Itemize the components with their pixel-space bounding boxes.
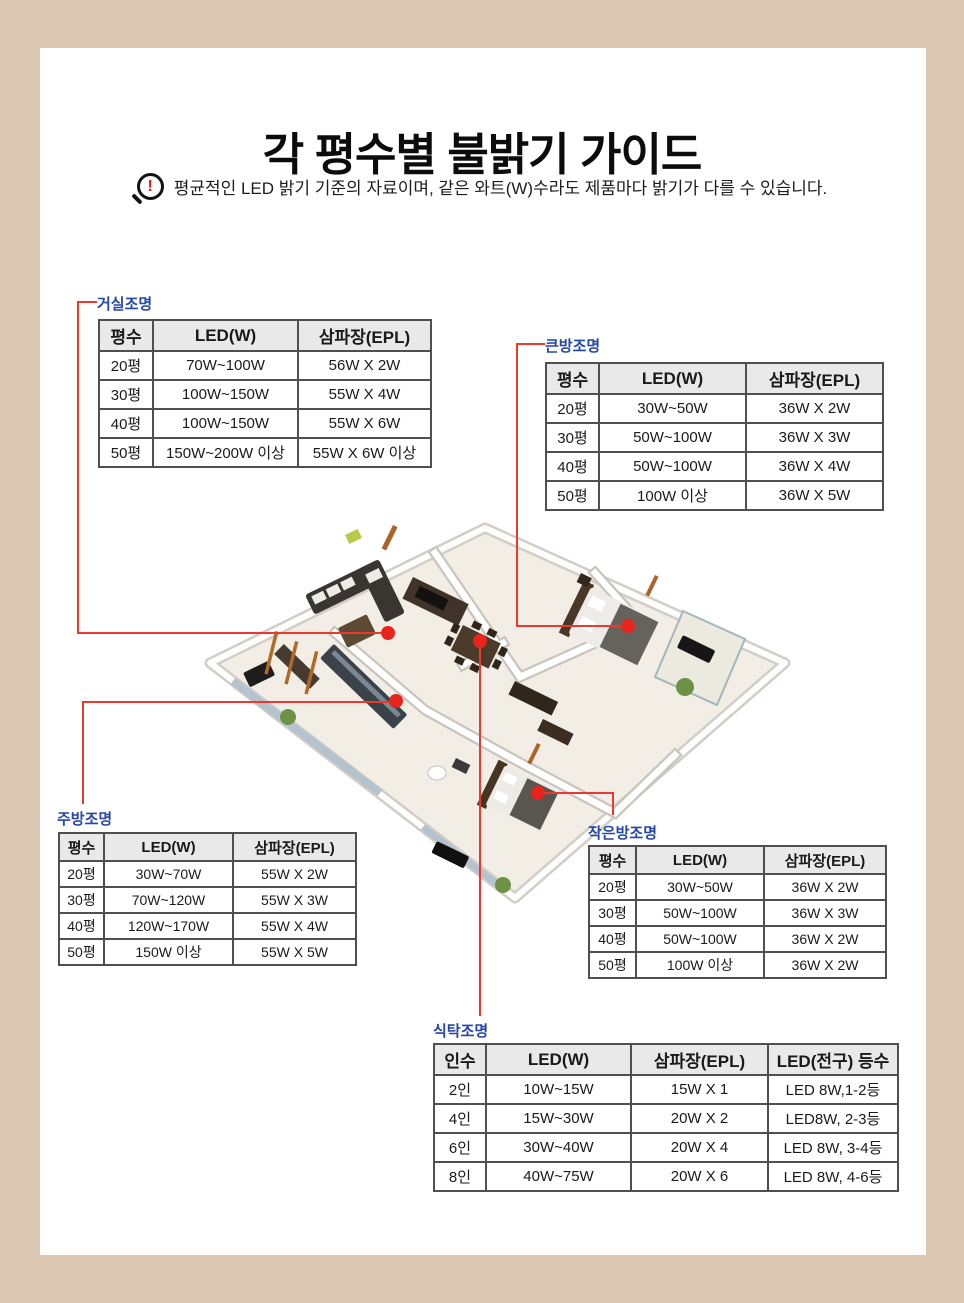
marker-smallroom-dot (531, 786, 545, 800)
column-header: LED(W) (636, 846, 764, 874)
living-table-block: 평수LED(W)삼파장(EPL)20평70W~100W56W X 2W30평10… (98, 319, 432, 468)
kitchen-table: 평수LED(W)삼파장(EPL)20평30W~70W55W X 2W30평70W… (58, 832, 357, 966)
table-cell: LED 8W,1-2등 (768, 1075, 898, 1104)
table-label-smallroom: 작은방조명 (588, 822, 657, 843)
smallroom-table: 평수LED(W)삼파장(EPL)20평30W~50W36W X 2W30평50W… (588, 845, 887, 979)
header-row: 평수LED(W)삼파장(EPL) (589, 846, 886, 874)
kitchen-table-block: 평수LED(W)삼파장(EPL)20평30W~70W55W X 2W30평70W… (58, 832, 357, 966)
column-header: 삼파장(EPL) (233, 833, 356, 861)
table-row: 50평150W 이상55W X 5W (59, 939, 356, 965)
table-row: 20평30W~50W36W X 2W (589, 874, 886, 900)
table-cell: 55W X 4W (298, 380, 431, 409)
table-cell: 50평 (59, 939, 104, 965)
table-cell: 20평 (589, 874, 636, 900)
table-cell: 30평 (546, 423, 599, 452)
table-cell: LED 8W, 4-6등 (768, 1162, 898, 1191)
table-cell: 30평 (99, 380, 153, 409)
table-cell: 70W~120W (104, 887, 233, 913)
table-cell: 40평 (59, 913, 104, 939)
table-row: 20평30W~70W55W X 2W (59, 861, 356, 887)
connector-living-stub (77, 301, 97, 303)
column-header: 삼파장(EPL) (746, 363, 883, 394)
connector-bigroom-stub (516, 343, 545, 345)
table-cell: 40평 (99, 409, 153, 438)
table-cell: LED8W, 2-3등 (768, 1104, 898, 1133)
table-row: 30평50W~100W36W X 3W (589, 900, 886, 926)
header-row: 평수LED(W)삼파장(EPL) (546, 363, 883, 394)
table-cell: 30W~40W (486, 1133, 631, 1162)
table-cell: 36W X 2W (764, 926, 886, 952)
table-cell: 55W X 2W (233, 861, 356, 887)
table-cell: 55W X 3W (233, 887, 356, 913)
table-cell: 30평 (589, 900, 636, 926)
table-cell: 50W~100W (636, 926, 764, 952)
exclamation-glyph: ! (148, 179, 153, 195)
table-row: 8인40W~75W20W X 6LED 8W, 4-6등 (434, 1162, 898, 1191)
table-row: 50평100W 이상36W X 2W (589, 952, 886, 978)
bigroom-table-block: 평수LED(W)삼파장(EPL)20평30W~50W36W X 2W30평50W… (545, 362, 884, 511)
table-cell: 55W X 6W (298, 409, 431, 438)
table-cell: 55W X 4W (233, 913, 356, 939)
table-row: 20평70W~100W56W X 2W (99, 351, 431, 380)
column-header: 삼파장(EPL) (298, 320, 431, 351)
marker-dining-dot (473, 634, 487, 648)
table-cell: 50W~100W (636, 900, 764, 926)
table-cell: 30평 (59, 887, 104, 913)
table-cell: 20W X 4 (631, 1133, 768, 1162)
column-header: 평수 (59, 833, 104, 861)
table-cell: 15W X 1 (631, 1075, 768, 1104)
connector-bigroom-vertical (516, 343, 518, 627)
table-cell: 30W~70W (104, 861, 233, 887)
table-cell: 50평 (99, 438, 153, 467)
table-cell: 2인 (434, 1075, 486, 1104)
smallroom-table-block: 평수LED(W)삼파장(EPL)20평30W~50W36W X 2W30평50W… (588, 845, 887, 979)
table-cell: 40W~75W (486, 1162, 631, 1191)
table-cell: 8인 (434, 1162, 486, 1191)
table-cell: 36W X 2W (764, 874, 886, 900)
table-cell: 4인 (434, 1104, 486, 1133)
table-cell: LED 8W, 3-4등 (768, 1133, 898, 1162)
connector-smallroom-horizontal (538, 792, 614, 794)
table-cell: 100W 이상 (599, 481, 746, 510)
table-row: 40평50W~100W36W X 4W (546, 452, 883, 481)
table-cell: 6인 (434, 1133, 486, 1162)
table-cell: 36W X 2W (746, 394, 883, 423)
table-cell: 50평 (589, 952, 636, 978)
marker-bigroom-dot (621, 619, 635, 633)
table-row: 6인30W~40W20W X 4LED 8W, 3-4등 (434, 1133, 898, 1162)
table-cell: 30W~50W (636, 874, 764, 900)
notice-text: 평균적인 LED 밝기 기준의 자료이며, 같은 와트(W)수라도 제품마다 밝… (174, 174, 828, 199)
connector-smallroom-vertical (612, 792, 614, 815)
table-cell: 36W X 4W (746, 452, 883, 481)
table-cell: 20W X 2 (631, 1104, 768, 1133)
table-cell: 100W 이상 (636, 952, 764, 978)
table-cell: 56W X 2W (298, 351, 431, 380)
table-cell: 40평 (546, 452, 599, 481)
column-header: LED(W) (104, 833, 233, 861)
column-header: LED(W) (153, 320, 298, 351)
table-cell: 36W X 2W (764, 952, 886, 978)
column-header: LED(W) (486, 1044, 631, 1075)
table-cell: 10W~15W (486, 1075, 631, 1104)
table-cell: 50W~100W (599, 452, 746, 481)
table-row: 50평150W~200W 이상55W X 6W 이상 (99, 438, 431, 467)
table-cell: 50W~100W (599, 423, 746, 452)
table-cell: 20평 (546, 394, 599, 423)
table-row: 30평50W~100W36W X 3W (546, 423, 883, 452)
column-header: 인수 (434, 1044, 486, 1075)
table-cell: 150W~200W 이상 (153, 438, 298, 467)
connector-kitchen-vertical (82, 701, 84, 804)
table-row: 30평100W~150W55W X 4W (99, 380, 431, 409)
table-row: 2인10W~15W15W X 1LED 8W,1-2등 (434, 1075, 898, 1104)
column-header: 삼파장(EPL) (631, 1044, 768, 1075)
header-row: 인수LED(W)삼파장(EPL)LED(전구) 등수 (434, 1044, 898, 1075)
table-cell: 30W~50W (599, 394, 746, 423)
table-cell: 20평 (59, 861, 104, 887)
table-cell: 36W X 5W (746, 481, 883, 510)
table-row: 4인15W~30W20W X 2LED8W, 2-3등 (434, 1104, 898, 1133)
header-row: 평수LED(W)삼파장(EPL) (99, 320, 431, 351)
column-header: LED(W) (599, 363, 746, 394)
living-table: 평수LED(W)삼파장(EPL)20평70W~100W56W X 2W30평10… (98, 319, 432, 468)
magnifier-alert-icon: ! (137, 173, 164, 200)
column-header: 평수 (99, 320, 153, 351)
header-row: 평수LED(W)삼파장(EPL) (59, 833, 356, 861)
bigroom-table: 평수LED(W)삼파장(EPL)20평30W~50W36W X 2W30평50W… (545, 362, 884, 511)
marker-living-dot (381, 626, 395, 640)
column-header: 삼파장(EPL) (764, 846, 886, 874)
table-cell: 70W~100W (153, 351, 298, 380)
marker-kitchen-dot (389, 694, 403, 708)
column-header: LED(전구) 등수 (768, 1044, 898, 1075)
table-cell: 15W~30W (486, 1104, 631, 1133)
dining-table-block: 인수LED(W)삼파장(EPL)LED(전구) 등수2인10W~15W15W X… (433, 1043, 899, 1192)
table-cell: 100W~150W (153, 380, 298, 409)
table-cell: 55W X 5W (233, 939, 356, 965)
column-header: 평수 (589, 846, 636, 874)
table-label-kitchen: 주방조명 (57, 808, 112, 829)
table-label-living: 거실조명 (97, 293, 152, 314)
table-row: 30평70W~120W55W X 3W (59, 887, 356, 913)
table-cell: 150W 이상 (104, 939, 233, 965)
table-cell: 36W X 3W (764, 900, 886, 926)
table-label-bigroom: 큰방조명 (545, 335, 600, 356)
connector-living-horizontal (77, 632, 388, 634)
table-row: 40평100W~150W55W X 6W (99, 409, 431, 438)
notice-line: ! 평균적인 LED 밝기 기준의 자료이며, 같은 와트(W)수라도 제품마다… (0, 173, 964, 200)
column-header: 평수 (546, 363, 599, 394)
connector-bigroom-horizontal (516, 625, 628, 627)
table-row: 40평50W~100W36W X 2W (589, 926, 886, 952)
table-cell: 20W X 6 (631, 1162, 768, 1191)
table-label-dining: 식탁조명 (433, 1020, 488, 1041)
table-row: 40평120W~170W55W X 4W (59, 913, 356, 939)
connector-kitchen-horizontal (82, 701, 396, 703)
dining-table: 인수LED(W)삼파장(EPL)LED(전구) 등수2인10W~15W15W X… (433, 1043, 899, 1192)
table-cell: 40평 (589, 926, 636, 952)
table-cell: 36W X 3W (746, 423, 883, 452)
connector-living-vertical (77, 301, 79, 634)
table-row: 20평30W~50W36W X 2W (546, 394, 883, 423)
table-cell: 55W X 6W 이상 (298, 438, 431, 467)
table-cell: 20평 (99, 351, 153, 380)
infographic-page: 각 평수별 불밝기 가이드 ! 평균적인 LED 밝기 기준의 자료이며, 같은… (0, 0, 964, 1303)
table-row: 50평100W 이상36W X 5W (546, 481, 883, 510)
table-cell: 50평 (546, 481, 599, 510)
table-cell: 120W~170W (104, 913, 233, 939)
connector-dining-vertical (479, 641, 481, 1016)
table-cell: 100W~150W (153, 409, 298, 438)
